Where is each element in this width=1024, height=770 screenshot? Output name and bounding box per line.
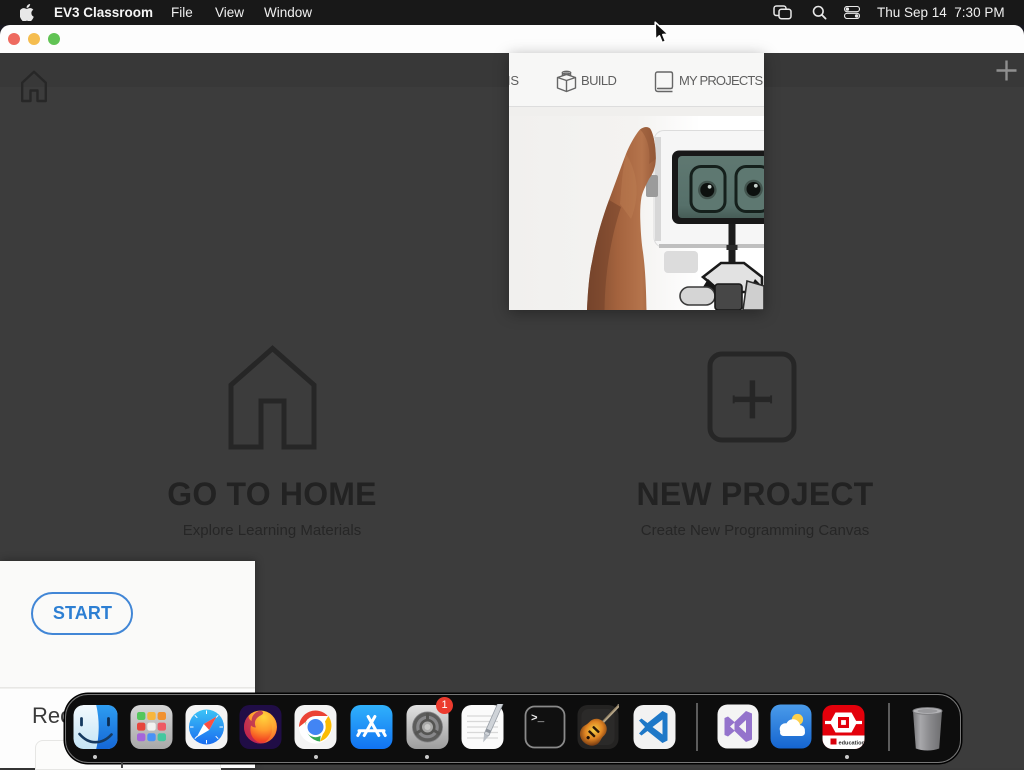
svg-text:education: education [839, 740, 866, 746]
svg-text:>_: >_ [531, 713, 545, 725]
